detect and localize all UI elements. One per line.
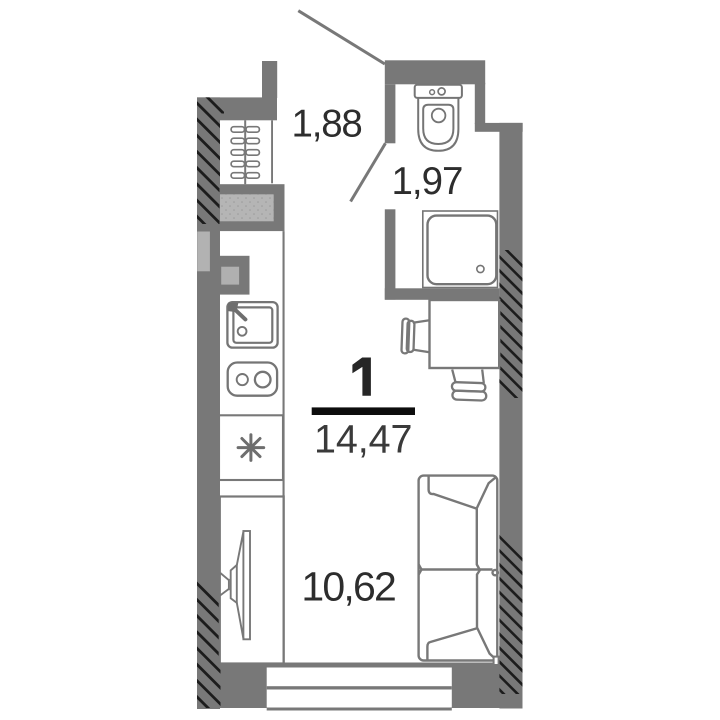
svg-text:14,47: 14,47 (314, 418, 412, 462)
svg-text:10,62: 10,62 (301, 563, 395, 609)
svg-text:1,88: 1,88 (292, 103, 362, 146)
svg-text:1,97: 1,97 (392, 160, 463, 203)
